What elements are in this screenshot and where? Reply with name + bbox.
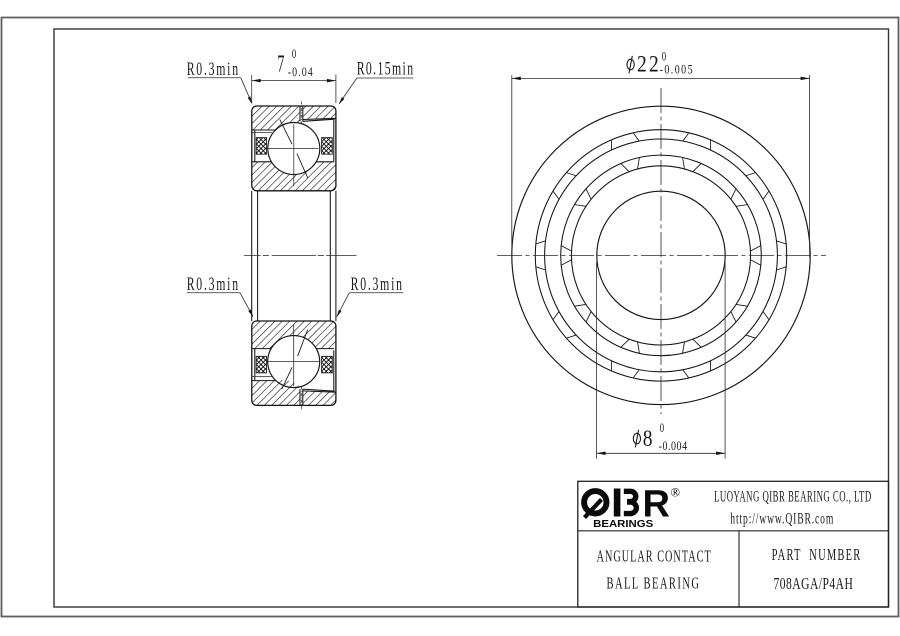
svg-text:BEARINGS: BEARINGS (593, 518, 653, 530)
svg-text:-0.004: -0.004 (659, 440, 688, 453)
svg-text:0: 0 (660, 422, 664, 436)
svg-text:-0.04: -0.04 (288, 66, 313, 79)
svg-text:LUOYANG QIBR BEARING CO., LTD: LUOYANG QIBR BEARING CO., LTD (714, 487, 871, 506)
svg-text:ANGULAR CONTACT: ANGULAR CONTACT (597, 548, 711, 566)
svg-text:8: 8 (643, 425, 653, 451)
svg-text:7: 7 (277, 51, 284, 78)
svg-text:PART NUMBER: PART NUMBER (772, 545, 861, 564)
svg-text:-0.005: -0.005 (660, 64, 693, 77)
svg-text:708AGA/P4AH: 708AGA/P4AH (774, 575, 854, 594)
svg-text:BALL BEARING: BALL BEARING (607, 574, 699, 593)
svg-text:0: 0 (292, 47, 296, 61)
svg-text:R0.3min: R0.3min (187, 274, 238, 294)
svg-text:®: ® (671, 486, 681, 500)
svg-text:http://www.QIBR.com: http://www.QIBR.com (730, 509, 834, 527)
svg-text:0: 0 (662, 50, 666, 64)
svg-text:R0.3min: R0.3min (351, 274, 402, 294)
svg-text:R0.3min: R0.3min (187, 59, 238, 79)
